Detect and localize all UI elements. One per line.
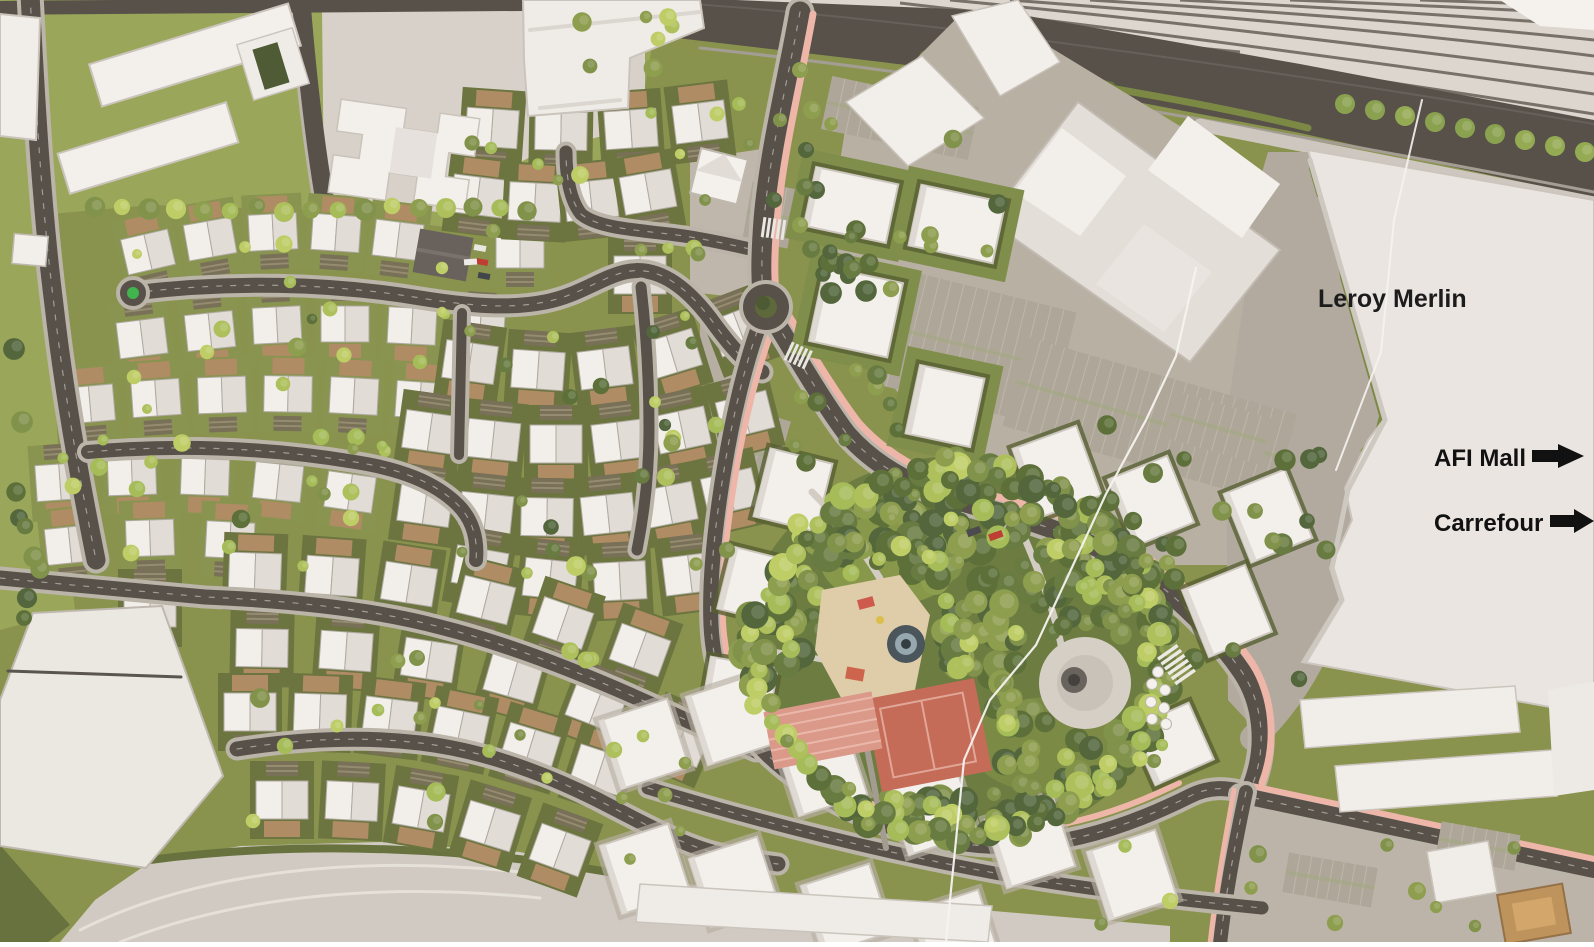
svg-text:Leroy Merlin: Leroy Merlin <box>1318 285 1467 313</box>
svg-text:AFI Mall: AFI Mall <box>1434 445 1526 472</box>
svg-text:Carrefour: Carrefour <box>1434 510 1543 537</box>
